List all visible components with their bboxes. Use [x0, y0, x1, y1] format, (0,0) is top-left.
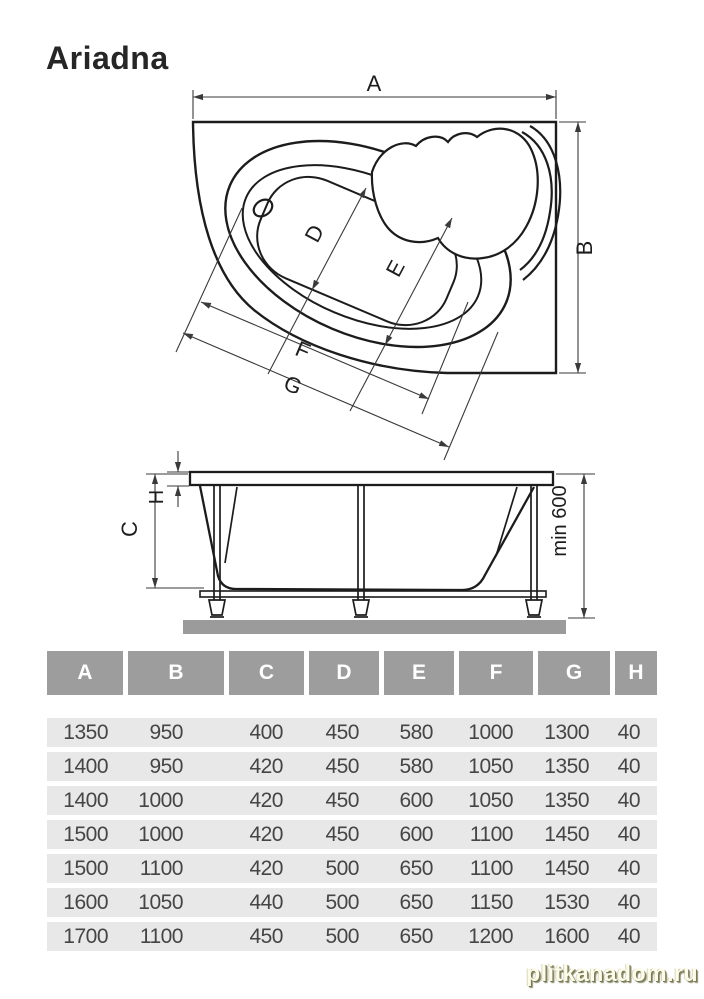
table-cell: 450: [309, 786, 379, 815]
table-cell: 1100: [459, 854, 533, 883]
top-view-drawing: [193, 101, 560, 388]
table-cell: 450: [309, 718, 379, 747]
table-row: 14009504204505801050135040: [47, 752, 657, 781]
spec-sheet-page: Ariadna: [0, 0, 704, 999]
table-cell: 450: [309, 752, 379, 781]
table-cell: 1350: [538, 752, 610, 781]
table-cell: 600: [384, 786, 454, 815]
table-header-cell: C: [229, 651, 304, 695]
table-cell: 420: [229, 854, 304, 883]
table-cell: 40: [615, 854, 657, 883]
table-cell: 650: [384, 854, 454, 883]
table-cell: 1500: [47, 820, 123, 849]
table-header-cell: B: [128, 651, 224, 695]
headrest-outline: [372, 129, 538, 259]
table-row: 13509504004505801000130040: [47, 718, 657, 747]
table-cell: 420: [229, 752, 304, 781]
table-cell: 1450: [538, 854, 610, 883]
dim-line-f: [201, 302, 429, 399]
table-cell: 1050: [459, 752, 533, 781]
frame-rail: [200, 591, 546, 597]
table-cell: 1530: [538, 888, 610, 917]
table-cell: 1050: [459, 786, 533, 815]
table-header-cell: G: [538, 651, 610, 695]
tub-bowl-profile: [200, 486, 534, 590]
table-cell: 440: [229, 888, 304, 917]
table-row: 150011004205006501100145040: [47, 854, 657, 883]
table-cell: 1400: [47, 786, 123, 815]
table-cell: 1350: [47, 718, 123, 747]
table-cell: 450: [229, 922, 304, 951]
table-cell: 650: [384, 888, 454, 917]
table-cell: 40: [615, 820, 657, 849]
table-cell: 500: [309, 854, 379, 883]
table-cell: 1400: [47, 752, 123, 781]
table-cell: 1000: [128, 820, 224, 849]
table-cell: 40: [615, 752, 657, 781]
bowl-brace-left: [225, 487, 237, 563]
table-cell: 1600: [538, 922, 610, 951]
table-row: 160010504405006501150153040: [47, 888, 657, 917]
table-header-cell: D: [309, 651, 379, 695]
table-header-cell: A: [47, 651, 123, 695]
table-header-cell: E: [384, 651, 454, 695]
table-cell: 1100: [128, 854, 224, 883]
table-cell: 40: [615, 888, 657, 917]
table-cell: 1150: [459, 888, 533, 917]
label-c: C: [117, 521, 142, 537]
table-header-cell: H: [615, 651, 657, 695]
label-d: D: [300, 221, 330, 247]
label-g: G: [280, 370, 306, 400]
table-cell: 400: [229, 718, 304, 747]
drain-circle: [251, 196, 276, 220]
table-cell: 420: [229, 786, 304, 815]
ground-strip: [183, 620, 566, 634]
watermark: plitkanadom.ru: [526, 960, 698, 987]
technical-drawing: A B D E F G: [0, 0, 704, 650]
table-cell: 40: [615, 718, 657, 747]
table-cell: 40: [615, 922, 657, 951]
label-h: H: [146, 490, 168, 504]
ext-line: [176, 208, 242, 352]
table-cell: 500: [309, 888, 379, 917]
table-cell: 1350: [538, 786, 610, 815]
table-header-cell: F: [459, 651, 533, 695]
table-cell: 450: [309, 820, 379, 849]
side-view-drawing: [183, 472, 566, 634]
table-cell: 420: [229, 820, 304, 849]
table-cell: 1500: [47, 854, 123, 883]
label-a: A: [367, 71, 382, 96]
table-cell: 1000: [128, 786, 224, 815]
table-cell: 1050: [128, 888, 224, 917]
table-cell: 580: [384, 752, 454, 781]
dimension-table: ABCDEFGH 1350950400450580100013004014009…: [47, 651, 657, 951]
table-cell: 950: [128, 752, 224, 781]
table-row: 150010004204506001100145040: [47, 820, 657, 849]
rim-slab: [190, 472, 553, 485]
label-f: F: [292, 336, 314, 364]
table-cell: 1200: [459, 922, 533, 951]
table-cell: 1300: [538, 718, 610, 747]
table-cell: 1600: [47, 888, 123, 917]
table-body: 1350950400450580100013004014009504204505…: [47, 718, 657, 951]
table-cell: 1700: [47, 922, 123, 951]
table-cell: 500: [309, 922, 379, 951]
side-view-labels: C H min 600: [117, 485, 571, 556]
table-cell: 600: [384, 820, 454, 849]
table-cell: 650: [384, 922, 454, 951]
ext-line: [444, 332, 498, 460]
table-cell: 1450: [538, 820, 610, 849]
label-min600: min 600: [549, 485, 571, 556]
table-cell: 580: [384, 718, 454, 747]
table-cell: 1100: [459, 820, 533, 849]
table-cell: 1000: [459, 718, 533, 747]
table-cell: 1100: [128, 922, 224, 951]
label-b: B: [572, 241, 597, 256]
table-header-row: ABCDEFGH: [47, 651, 657, 695]
table-row: 140010004204506001050135040: [47, 786, 657, 815]
table-cell: 950: [128, 718, 224, 747]
label-e: E: [381, 256, 410, 281]
table-row: 170011004505006501200160040: [47, 922, 657, 951]
table-cell: 40: [615, 786, 657, 815]
